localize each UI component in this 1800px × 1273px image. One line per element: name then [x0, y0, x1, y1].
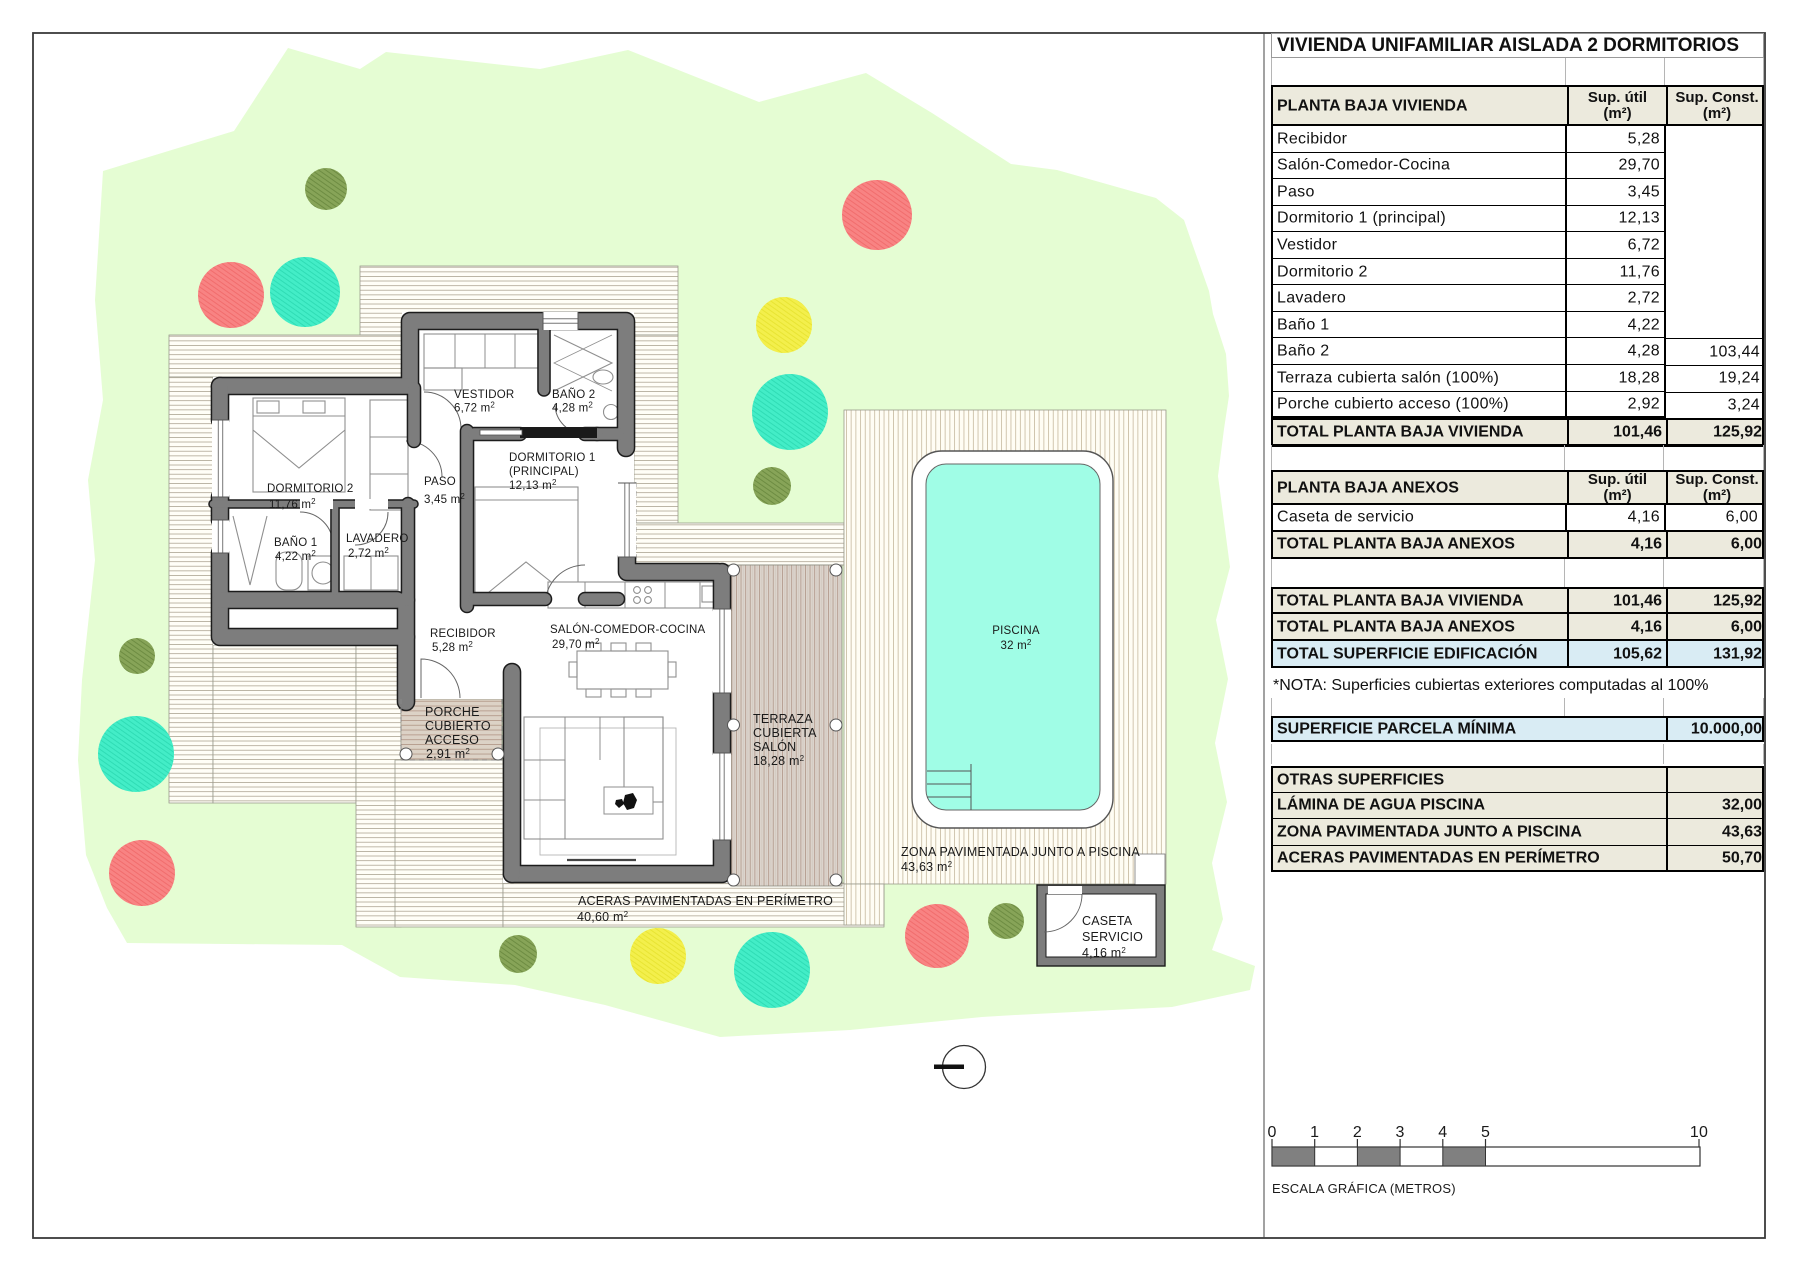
svg-text:4: 4 — [1438, 1124, 1447, 1141]
svg-text:2: 2 — [1353, 1124, 1362, 1141]
svg-text:PASO: PASO — [424, 476, 456, 488]
svg-text:5: 5 — [1481, 1124, 1490, 1141]
svg-text:DORMITORIO 1: DORMITORIO 1 — [509, 452, 596, 464]
svg-text:VESTIDOR: VESTIDOR — [454, 389, 514, 401]
svg-text:4,28 m2: 4,28 m2 — [552, 401, 593, 415]
svg-text:6,72 m2: 6,72 m2 — [454, 401, 495, 415]
svg-text:BAÑO 2: BAÑO 2 — [552, 388, 595, 401]
svg-text:CASETA: CASETA — [1082, 914, 1133, 928]
svg-text:PORCHE: PORCHE — [425, 705, 480, 719]
svg-text:ZONA PAVIMENTADA JUNTO A PISCI: ZONA PAVIMENTADA JUNTO A PISCINA — [901, 845, 1140, 859]
svg-text:1: 1 — [1310, 1124, 1319, 1141]
svg-text:0: 0 — [1267, 1124, 1276, 1141]
svg-text:29,70 m2: 29,70 m2 — [552, 637, 600, 651]
svg-text:SALÓN: SALÓN — [753, 739, 796, 754]
svg-text:2,91 m2: 2,91 m2 — [426, 747, 470, 761]
svg-text:DORMITORIO 2: DORMITORIO 2 — [267, 483, 354, 495]
svg-text:SALÓN-COMEDOR-COCINA: SALÓN-COMEDOR-COCINA — [550, 623, 706, 636]
svg-text:11,76 m2: 11,76 m2 — [269, 497, 316, 511]
svg-text:BAÑO 1: BAÑO 1 — [274, 536, 317, 549]
svg-text:ACERAS PAVIMENTADAS EN PERÍMET: ACERAS PAVIMENTADAS EN PERÍMETRO — [578, 893, 833, 908]
svg-text:3,45 m2: 3,45 m2 — [424, 492, 465, 506]
svg-text:LAVADERO: LAVADERO — [346, 533, 409, 545]
svg-text:ACCESO: ACCESO — [425, 733, 479, 747]
svg-text:ESCALA GRÁFICA (METROS): ESCALA GRÁFICA (METROS) — [1272, 1181, 1456, 1196]
svg-text:SERVICIO: SERVICIO — [1082, 930, 1143, 944]
svg-text:4,16 m2: 4,16 m2 — [1082, 946, 1126, 960]
svg-text:12,13 m2: 12,13 m2 — [509, 478, 557, 492]
svg-text:PISCINA: PISCINA — [992, 625, 1040, 637]
svg-text:40,60 m2: 40,60 m2 — [577, 910, 629, 924]
svg-text:RECIBIDOR: RECIBIDOR — [430, 628, 496, 640]
svg-text:3: 3 — [1396, 1124, 1405, 1141]
svg-text:CUBIERTO: CUBIERTO — [425, 719, 491, 733]
svg-text:CUBIERTA: CUBIERTA — [753, 726, 817, 740]
svg-text:10: 10 — [1690, 1124, 1708, 1141]
svg-text:(PRINCIPAL): (PRINCIPAL) — [509, 466, 579, 478]
svg-text:4,22 m2: 4,22 m2 — [275, 549, 316, 563]
svg-text:TERRAZA: TERRAZA — [753, 712, 813, 726]
svg-text:2,72 m2: 2,72 m2 — [348, 546, 389, 560]
svg-text:43,63 m2: 43,63 m2 — [901, 860, 953, 874]
svg-text:5,28 m2: 5,28 m2 — [432, 640, 473, 654]
svg-text:18,28 m2: 18,28 m2 — [753, 754, 805, 768]
